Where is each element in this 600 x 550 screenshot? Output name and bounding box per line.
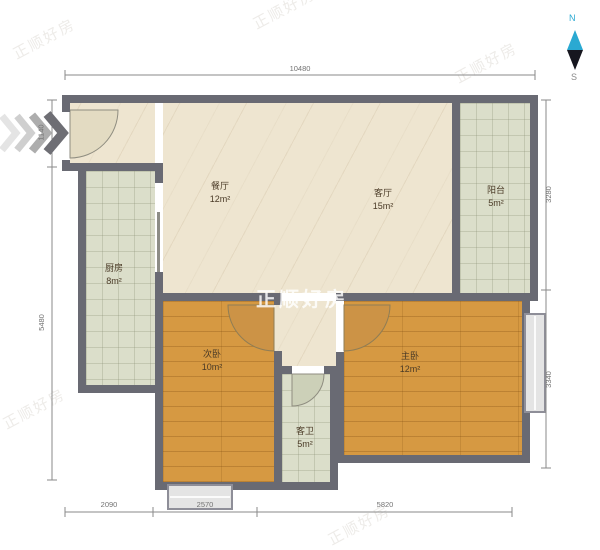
dim-bottom-right: 5820: [355, 500, 415, 509]
window-pane: [170, 496, 230, 498]
room-area: 12m²: [188, 193, 252, 206]
compass-south-label: S: [571, 72, 577, 82]
room-area: 12m²: [378, 363, 442, 376]
watermark-faint: 正顺好房: [0, 383, 69, 433]
dim-bottom-left: 2090: [79, 500, 139, 509]
wall-entrance-bottom: [62, 163, 163, 171]
master-floor: [344, 301, 522, 455]
room-label-living: 客厅 15m²: [351, 187, 415, 212]
room-name: 次卧: [180, 348, 244, 361]
room-label-kitchen: 厨房 8m²: [82, 262, 146, 287]
dim-left-upper: 1140: [37, 124, 46, 140]
wall-master-bottom: [336, 455, 530, 463]
room-label-bath: 客卫 5m²: [273, 425, 337, 450]
wall-kitchen-right-lower: [155, 272, 163, 490]
bedroom2-floor: [163, 301, 274, 482]
master-window: [524, 313, 546, 413]
room-area: 8m²: [82, 275, 146, 288]
room-area: 5m²: [464, 197, 528, 210]
wall-kitchen-bottom: [78, 385, 163, 393]
room-label-balcony: 阳台 5m²: [464, 184, 528, 209]
watermark-faint: 正顺好房: [9, 13, 79, 63]
dim-bottom-mid: 2570: [175, 500, 235, 509]
room-label-bedroom2: 次卧 10m²: [180, 348, 244, 373]
dim-top: 10480: [270, 64, 330, 73]
room-label-master: 主卧 12m²: [378, 350, 442, 375]
room-name: 主卧: [378, 350, 442, 363]
wall-master-top: [336, 293, 538, 301]
room-area: 10m²: [180, 361, 244, 374]
watermark-center: 正顺好房: [256, 283, 348, 312]
wall-right-balcony: [530, 95, 538, 301]
room-area: 15m²: [351, 200, 415, 213]
room-area: 5m²: [273, 438, 337, 451]
compass-north-label: N: [569, 13, 576, 23]
entrance-floor: [70, 103, 155, 163]
kitchen-door-leaf: [157, 212, 160, 272]
dim-right-lower: 3340: [544, 371, 553, 388]
window-pane: [534, 316, 536, 410]
room-name: 阳台: [464, 184, 528, 197]
room-name: 餐厅: [188, 180, 252, 193]
dim-right-upper: 3280: [544, 186, 553, 203]
room-name: 客卫: [273, 425, 337, 438]
room-name: 厨房: [82, 262, 146, 275]
wall-entrance-left-top: [62, 95, 70, 112]
compass-needle-icon: [567, 30, 583, 70]
watermark-faint: 正顺好房: [451, 37, 521, 87]
wall-balcony-left: [452, 95, 460, 293]
entrance-arrow-icon: [2, 114, 63, 152]
room-name: 客厅: [351, 187, 415, 200]
wall-bath-top-left: [274, 366, 292, 374]
floorplan-canvas: 正顺好房 正顺好房 正顺好房 正顺好房 正顺好房: [0, 0, 600, 550]
wall-top: [62, 95, 538, 103]
dim-left-lower: 5480: [37, 314, 46, 331]
room-label-dining: 餐厅 12m²: [188, 180, 252, 205]
watermark-faint: 正顺好房: [249, 0, 319, 34]
wall-hall-left-lower: [274, 351, 282, 366]
